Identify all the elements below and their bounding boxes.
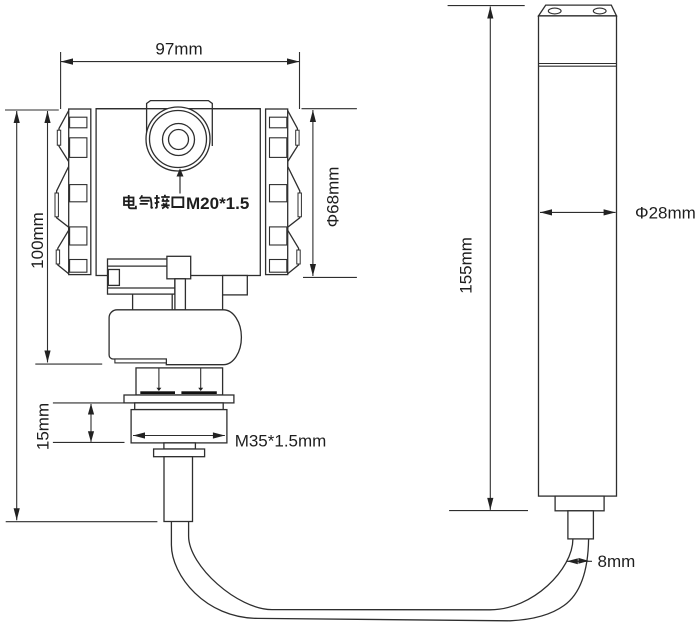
svg-text:M35*1.5mm: M35*1.5mm — [235, 432, 327, 451]
svg-text:155mm: 155mm — [457, 237, 476, 294]
svg-text:97mm: 97mm — [155, 40, 202, 59]
svg-text:Φ68mm: Φ68mm — [324, 167, 343, 228]
svg-text:Φ28mm: Φ28mm — [635, 204, 696, 223]
svg-text:8mm: 8mm — [598, 552, 636, 571]
svg-text:M20*1.5: M20*1.5 — [186, 194, 249, 213]
svg-text:15mm: 15mm — [34, 403, 53, 450]
svg-text:100mm: 100mm — [28, 212, 47, 269]
